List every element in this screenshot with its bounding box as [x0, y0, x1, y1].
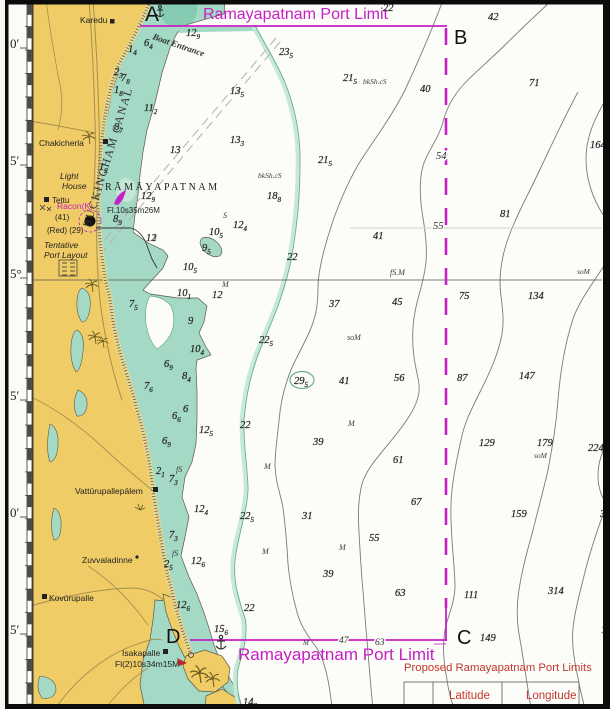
svg-text:22: 22 — [244, 603, 255, 614]
svg-text:37: 37 — [328, 299, 340, 310]
svg-text:31: 31 — [301, 511, 313, 522]
svg-text:0′: 0′ — [10, 505, 20, 520]
svg-text:22: 22 — [240, 420, 251, 431]
svg-text:47: 47 — [339, 636, 350, 646]
svg-text:54: 54 — [436, 151, 447, 162]
svg-text:22: 22 — [383, 3, 394, 14]
svg-text:5′: 5′ — [10, 153, 20, 168]
svg-text:87: 87 — [457, 373, 468, 384]
svg-text:159: 159 — [511, 509, 528, 520]
svg-text:Light: Light — [60, 171, 79, 181]
svg-text:soM: soM — [534, 451, 548, 460]
svg-text:55: 55 — [433, 221, 444, 232]
svg-text:RĀMĀYAPATNAM: RĀMĀYAPATNAM — [105, 182, 220, 193]
svg-text:41: 41 — [373, 231, 384, 242]
svg-text:fS: fS — [172, 549, 178, 558]
svg-text:134: 134 — [528, 291, 545, 302]
svg-text:39: 39 — [322, 569, 334, 580]
svg-text:9: 9 — [188, 316, 194, 327]
svg-text:M: M — [302, 639, 310, 647]
svg-text:Isakapalle: Isakapalle — [122, 648, 161, 658]
svg-text:22: 22 — [287, 252, 298, 263]
svg-text:5′: 5′ — [10, 388, 20, 403]
svg-text:S: S — [223, 211, 227, 220]
svg-text:56: 56 — [394, 373, 405, 384]
svg-text:6: 6 — [183, 404, 189, 415]
svg-text:Kovūrupalle: Kovūrupalle — [49, 593, 94, 603]
svg-text:Longitude: Longitude — [526, 690, 577, 702]
svg-text:111: 111 — [464, 590, 478, 601]
svg-text:Vattūrupallepālem: Vattūrupallepālem — [75, 486, 143, 496]
svg-text:soM: soM — [577, 267, 591, 276]
svg-text:(Red) (29): (Red) (29) — [47, 226, 84, 235]
svg-text:M: M — [347, 419, 356, 428]
svg-text:42: 42 — [488, 12, 499, 23]
svg-text:39: 39 — [312, 437, 324, 448]
svg-text:61: 61 — [393, 455, 404, 466]
svg-text:81: 81 — [500, 209, 511, 220]
svg-text:Zuvvaladinne: Zuvvaladinne — [82, 555, 133, 565]
svg-text:40: 40 — [420, 84, 431, 95]
svg-text:Proposed Ramayapatnam Port Lim: Proposed Ramayapatnam Port Limits — [404, 662, 592, 674]
svg-text:67: 67 — [411, 497, 422, 508]
svg-text:M: M — [261, 547, 270, 556]
svg-text:129: 129 — [479, 438, 496, 449]
svg-text:Chakicherla: Chakicherla — [39, 138, 84, 148]
svg-text:A: A — [145, 3, 159, 26]
svg-text:Tentative: Tentative — [44, 240, 78, 250]
svg-text:S: S — [153, 234, 157, 242]
svg-text:Ramayapatnam Port Limit: Ramayapatnam Port Limit — [203, 6, 389, 23]
svg-text:B: B — [454, 27, 467, 49]
svg-text:M: M — [263, 462, 272, 471]
svg-text:55: 55 — [369, 533, 380, 544]
svg-text:12: 12 — [212, 290, 223, 301]
svg-text:Fl(2)10s34m15M: Fl(2)10s34m15M — [115, 659, 179, 669]
svg-text:147: 147 — [519, 371, 536, 382]
svg-text:M: M — [221, 280, 230, 289]
svg-text:M: M — [338, 543, 347, 552]
svg-text:fS: fS — [176, 465, 182, 474]
svg-text:fS.M: fS.M — [390, 268, 406, 277]
svg-text:Port Layout: Port Layout — [44, 250, 88, 260]
svg-text:314: 314 — [547, 586, 565, 597]
svg-text:75: 75 — [459, 291, 470, 302]
svg-text:13: 13 — [170, 145, 181, 156]
svg-text:D: D — [166, 626, 180, 648]
svg-text:224: 224 — [588, 443, 605, 454]
svg-text:bkSh.cS: bkSh.cS — [363, 77, 387, 86]
svg-text:179: 179 — [537, 438, 554, 449]
svg-text:149: 149 — [480, 633, 497, 644]
svg-text:71: 71 — [529, 78, 540, 89]
svg-text:Fl.10s35m26M: Fl.10s35m26M — [107, 206, 160, 215]
svg-text:5′: 5′ — [10, 622, 20, 637]
svg-text:bkSh.cS: bkSh.cS — [258, 171, 282, 180]
svg-text:0′: 0′ — [10, 36, 20, 51]
svg-text:63: 63 — [395, 588, 406, 599]
svg-text:House: House — [62, 181, 87, 191]
svg-text:45: 45 — [392, 297, 403, 308]
svg-text:5°: 5° — [10, 266, 22, 281]
svg-text:(41): (41) — [55, 213, 70, 222]
svg-text:soM: soM — [347, 333, 362, 342]
svg-text:63: 63 — [375, 638, 385, 648]
svg-text:Karedu: Karedu — [80, 15, 108, 25]
svg-text:C: C — [457, 627, 471, 649]
svg-text:41: 41 — [339, 376, 350, 387]
svg-text:Latitude: Latitude — [449, 690, 490, 702]
